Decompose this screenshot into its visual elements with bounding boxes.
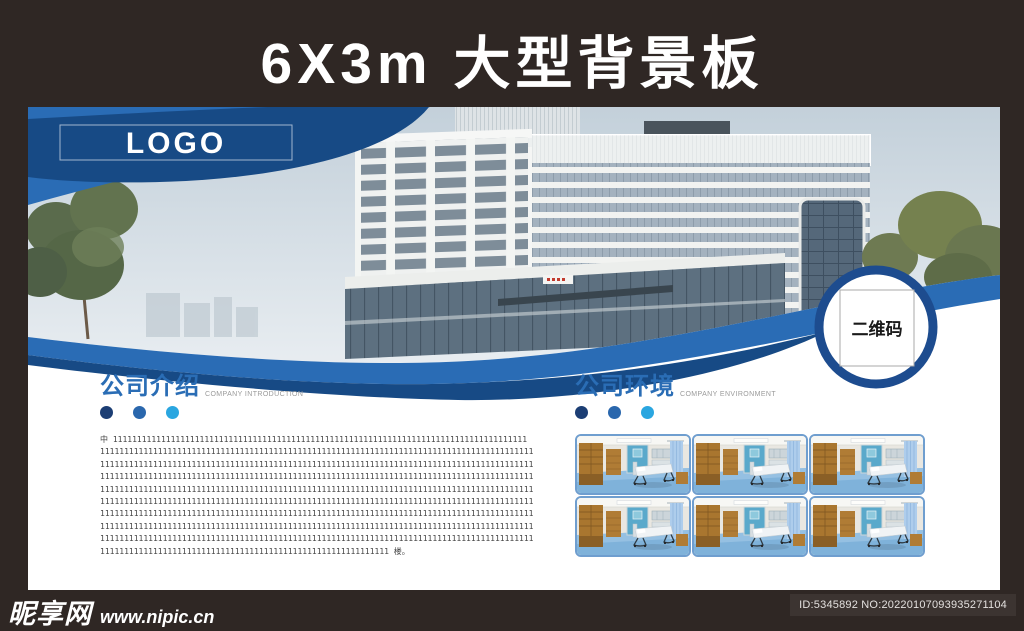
intro-title: 公司介绍 — [100, 375, 200, 399]
intro-body-text: 中 11111111111111111111111111111111111111… — [100, 434, 542, 558]
accent-dot — [166, 406, 179, 419]
image-id-badge: ID:5345892 NO:20220107093935271104 — [790, 594, 1016, 616]
environment-photo — [809, 434, 925, 495]
accent-dot — [575, 406, 588, 419]
environment-photo-grid — [575, 434, 935, 553]
environment-title: 公司环境 — [575, 375, 675, 399]
environment-photo — [809, 496, 925, 557]
qr-label: 二维码 — [852, 319, 903, 339]
page-title: 6X3m 大型背景板 — [0, 18, 1024, 100]
accent-dot — [641, 406, 654, 419]
site-url: www.nipic.cn — [100, 607, 214, 627]
site-name: 昵享网 — [8, 599, 92, 629]
intro-subtitle: COMPANY INTRODUCTION — [205, 391, 303, 398]
hero-banner: LOGO 二维码 — [28, 107, 1000, 407]
environment-photo — [692, 434, 808, 495]
accent-dots — [100, 406, 548, 419]
accent-dots — [575, 406, 955, 419]
accent-dot — [133, 406, 146, 419]
environment-subtitle: COMPANY ENVIRONMENT — [680, 391, 776, 398]
environment-photo — [575, 434, 691, 495]
backdrop-panel: LOGO 二维码 公司介绍 COMPANY INTRODUCTION 中 111… — [28, 107, 1000, 590]
poster-root: { "header": { "title": "6X3m 大型背景板" }, "… — [0, 0, 1024, 631]
section-company-intro: 公司介绍 COMPANY INTRODUCTION 中 111111111111… — [100, 375, 548, 558]
accent-dot — [608, 406, 621, 419]
section-company-environment: 公司环境 COMPANY ENVIRONMENT — [575, 375, 955, 553]
site-watermark: 昵享网www.nipic.cn — [8, 592, 214, 631]
accent-dot — [100, 406, 113, 419]
environment-photo — [692, 496, 808, 557]
environment-photo — [575, 496, 691, 557]
logo-text: LOGO — [126, 127, 226, 160]
